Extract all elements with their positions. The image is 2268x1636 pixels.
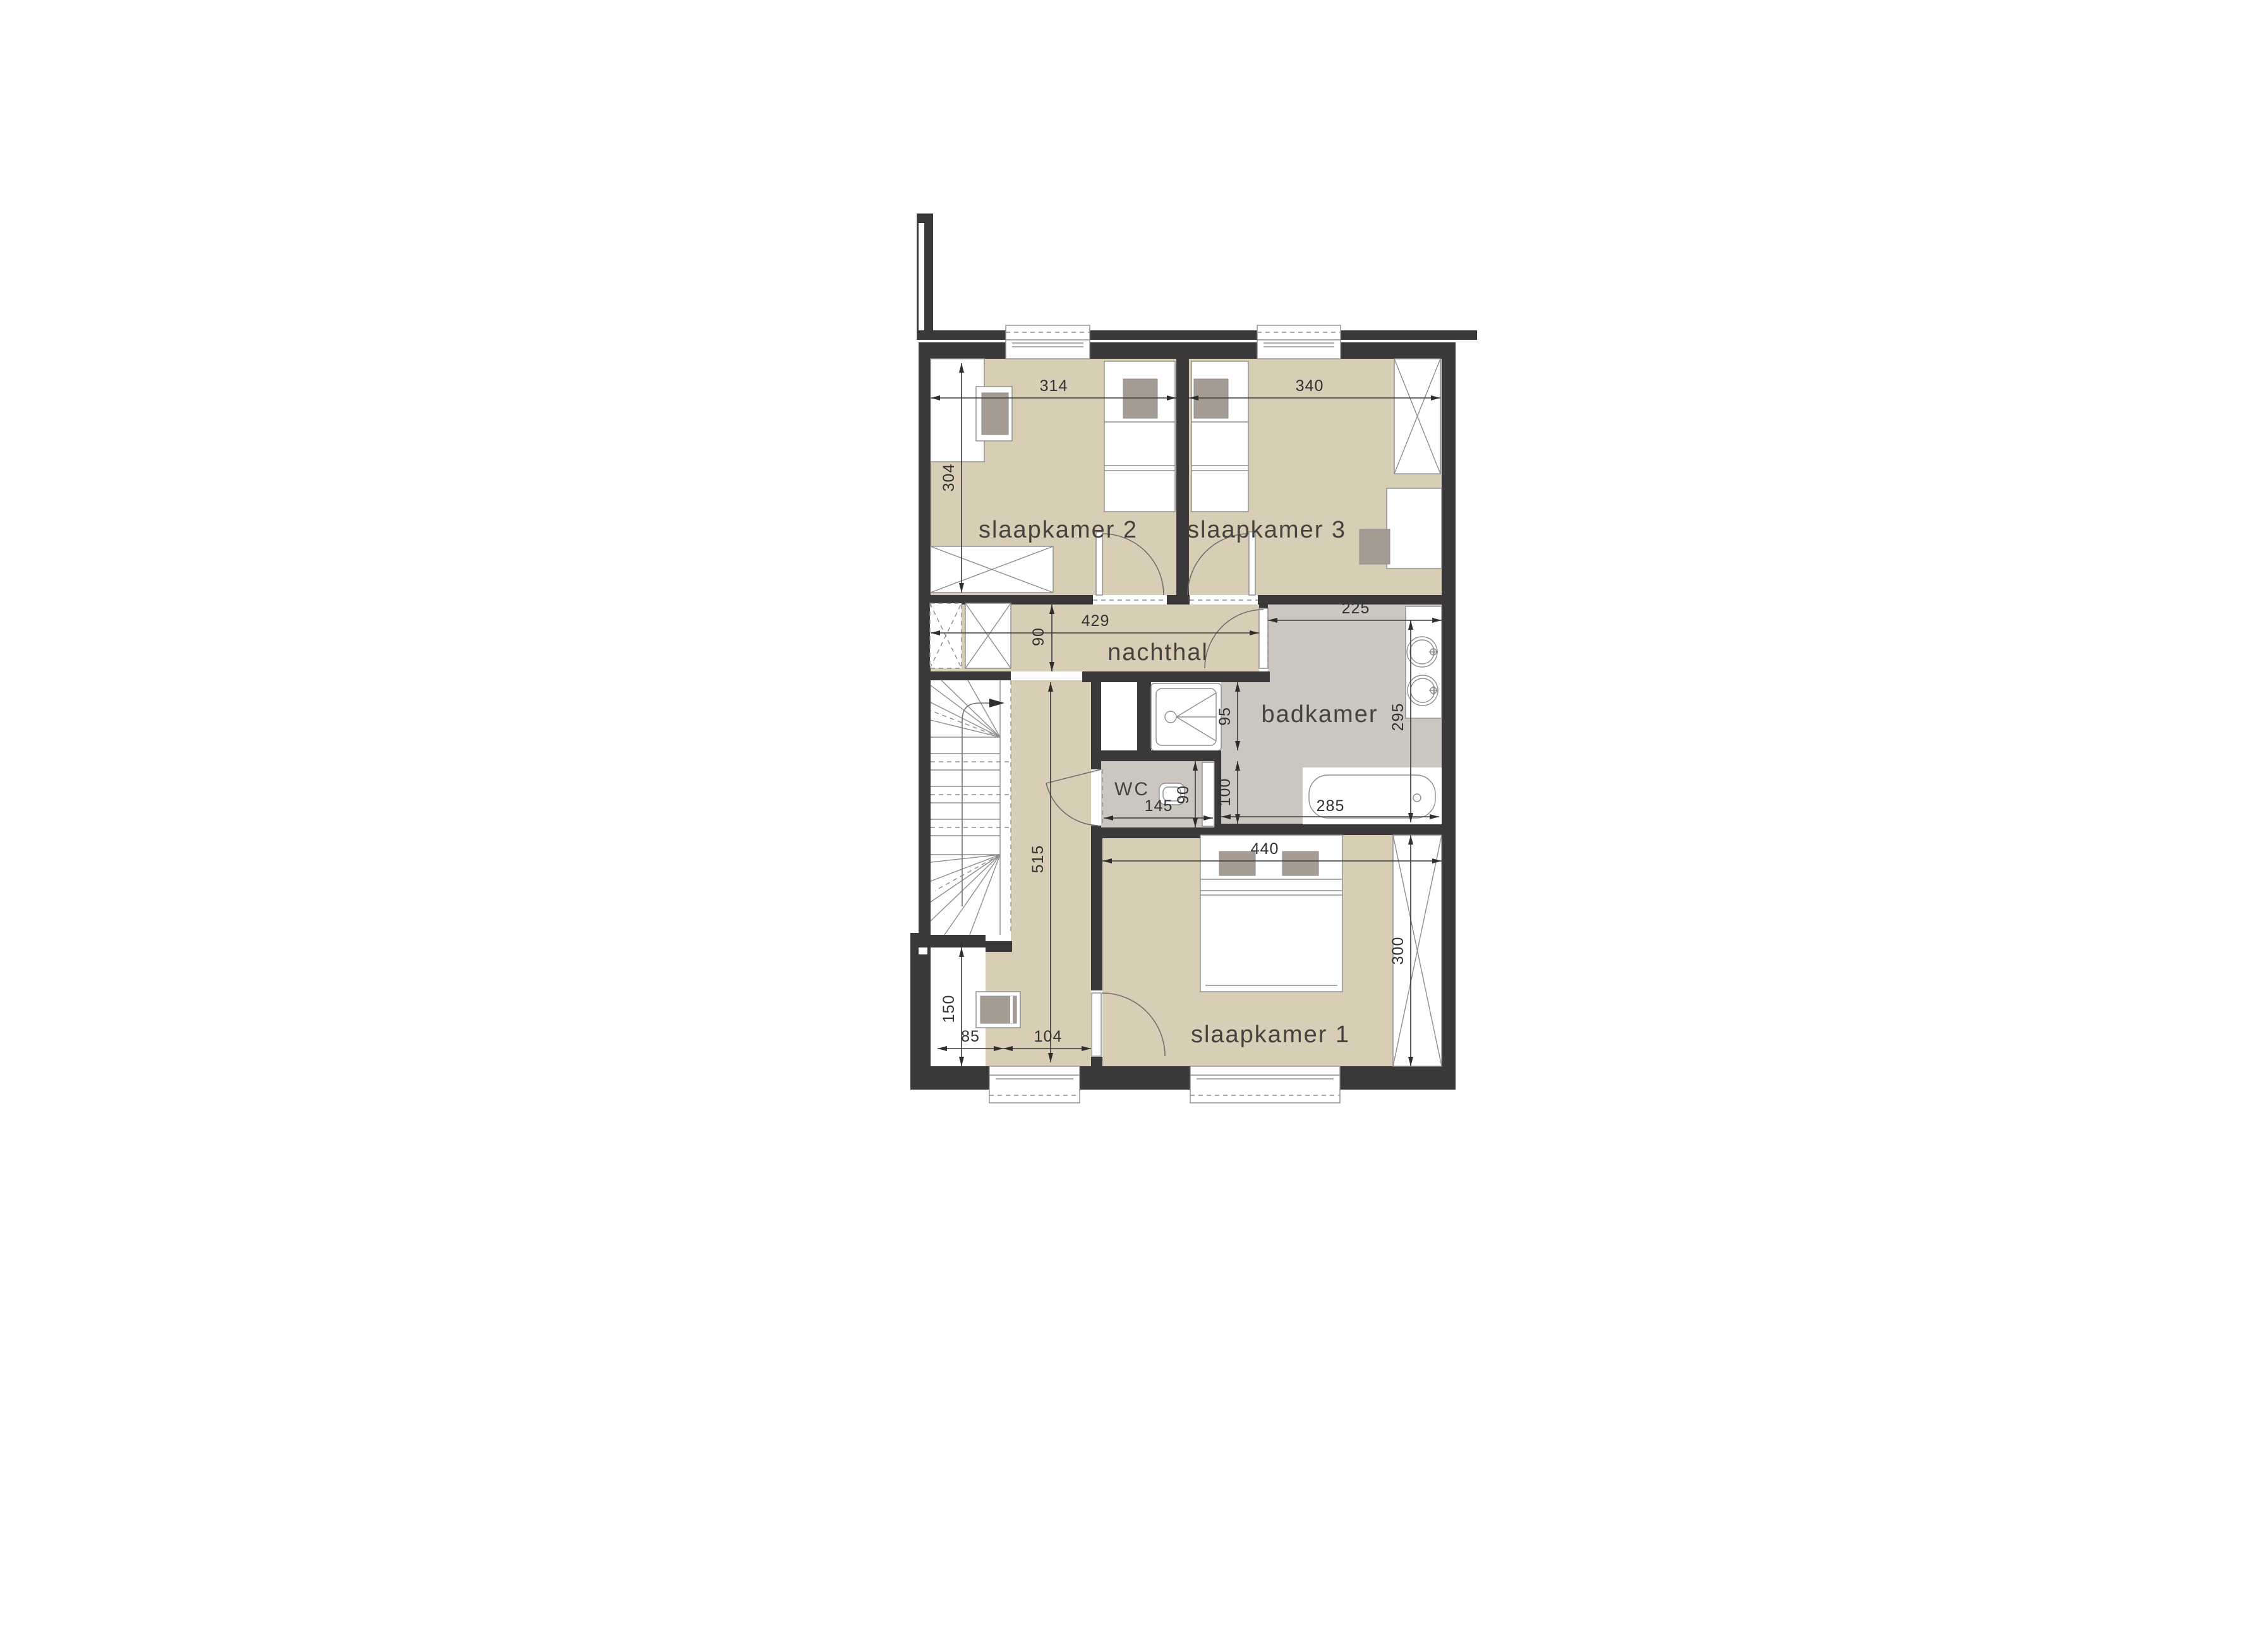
bottom-wall — [1080, 1066, 1190, 1090]
desk — [1387, 488, 1442, 568]
party-wall-cavity — [919, 223, 924, 339]
dim-badkamer-depth: 295 — [1389, 703, 1407, 731]
party-band — [1341, 330, 1477, 340]
dim-shower-zone: 95 — [1216, 707, 1234, 726]
wardrobe — [1394, 359, 1440, 474]
window-top-2 — [1257, 325, 1341, 359]
party-band — [1090, 330, 1257, 340]
top-wall — [1341, 342, 1456, 359]
floor-plan: 314 340 304 429 90 225 295 95 100 145 90… — [884, 189, 1516, 1115]
top-wall — [1090, 342, 1257, 359]
closet-shower-divider — [1137, 682, 1151, 750]
dim-sk2-width: 314 — [1040, 377, 1068, 395]
pillow — [1282, 851, 1318, 875]
label-nachthal: nachthal — [1107, 639, 1209, 666]
chair — [1360, 529, 1390, 564]
dim-niche-depth: 150 — [940, 995, 958, 1023]
bedroom-south-wall — [1167, 595, 1190, 604]
dim-hall-bottom-width: 104 — [1034, 1028, 1063, 1045]
page: 314 340 304 429 90 225 295 95 100 145 90… — [0, 0, 2268, 1636]
label-wc: WC — [1114, 779, 1150, 800]
bottom-wall — [1340, 1066, 1456, 1090]
label-slaapkamer-2: slaapkamer 2 — [979, 517, 1138, 543]
label-slaapkamer-3: slaapkamer 3 — [1187, 517, 1346, 543]
stair-top-wall — [919, 671, 1011, 680]
staircase — [931, 680, 1011, 976]
single-bed — [1104, 361, 1175, 512]
label-badkamer: badkamer — [1262, 701, 1378, 728]
dim-wc-width: 145 — [1145, 797, 1173, 815]
left-wall-step — [910, 933, 919, 1090]
dim-badkamer-width: 225 — [1342, 599, 1370, 617]
closet-box — [965, 603, 1011, 668]
partition-sk2-sk3 — [1176, 359, 1189, 595]
pillow — [1123, 379, 1157, 418]
window-bottom-sk1 — [1190, 1066, 1340, 1103]
sk1-west-wall — [1091, 838, 1102, 990]
label-slaapkamer-1: slaapkamer 1 — [1191, 1021, 1350, 1048]
dim-wc-zone: 100 — [1216, 778, 1234, 807]
dim-niche-width: 85 — [961, 1028, 980, 1045]
dim-nachthal-depth: 90 — [1030, 627, 1047, 646]
desk-top — [982, 393, 1008, 435]
wc-shelf — [1202, 762, 1214, 826]
dim-sk1-width: 440 — [1251, 840, 1279, 858]
dim-nachthal-width: 429 — [1082, 612, 1110, 630]
stair-south-stub — [986, 941, 1012, 952]
void-box — [930, 603, 962, 668]
shower — [1151, 683, 1221, 750]
bottom-wall — [910, 1066, 989, 1090]
nachthal-south-wall — [1082, 671, 1270, 682]
top-wall — [924, 342, 1006, 359]
right-wall — [1442, 342, 1456, 1090]
dim-bath-length: 285 — [1317, 797, 1345, 815]
sk1-north-wall — [1221, 824, 1442, 835]
bathtub — [1303, 767, 1442, 824]
stair-south-wall — [919, 935, 986, 947]
single-bed — [1191, 361, 1248, 512]
dim-hall-length: 515 — [1029, 845, 1047, 874]
wardrobe — [931, 546, 1053, 592]
pillow — [1194, 379, 1228, 418]
pillow — [1219, 851, 1255, 875]
left-wall — [919, 342, 931, 1090]
dim-sk3-width: 340 — [1296, 377, 1324, 395]
sk1-west-wall — [1091, 1057, 1102, 1066]
nachthal-closets — [930, 603, 1011, 668]
window-top-1 — [1006, 325, 1090, 359]
dim-sk2-depth: 304 — [940, 464, 958, 492]
double-bed — [1200, 835, 1342, 992]
badkamer-door-stub — [1259, 604, 1268, 608]
dim-wc-depth: 90 — [1174, 785, 1192, 804]
window-bottom-corridor — [989, 1066, 1080, 1103]
dim-sk1-depth: 300 — [1389, 937, 1407, 965]
party-band — [917, 330, 1006, 340]
floor-plan-drawing: 314 340 304 429 90 225 295 95 100 145 90… — [884, 189, 1516, 1112]
wc-north-wall — [1091, 750, 1221, 761]
